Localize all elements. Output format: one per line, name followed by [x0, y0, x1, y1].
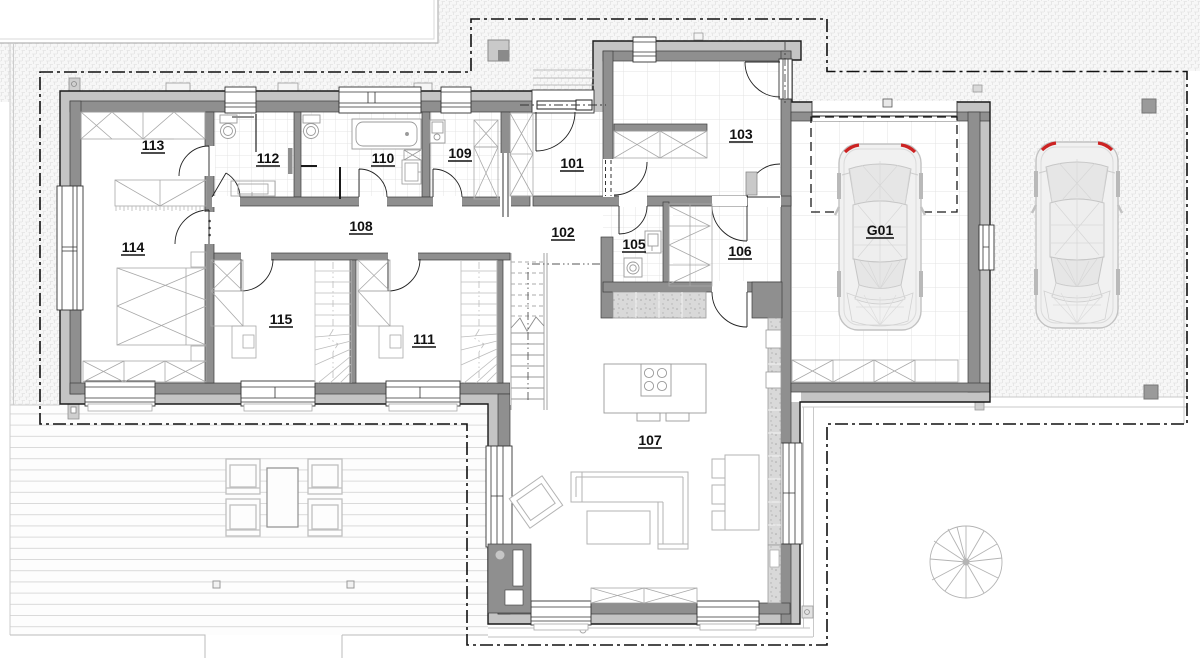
svg-text:112: 112 [257, 150, 280, 166]
svg-text:103: 103 [729, 126, 753, 142]
svg-text:108: 108 [349, 218, 373, 234]
svg-text:107: 107 [638, 432, 662, 448]
svg-text:111: 111 [413, 331, 435, 347]
svg-text:115: 115 [270, 311, 293, 327]
svg-text:110: 110 [372, 150, 395, 166]
svg-text:113: 113 [142, 137, 165, 153]
svg-text:102: 102 [551, 224, 575, 240]
svg-text:109: 109 [448, 145, 472, 161]
svg-text:105: 105 [622, 236, 646, 252]
svg-text:101: 101 [560, 155, 584, 171]
svg-text:G01: G01 [867, 222, 894, 238]
svg-text:114: 114 [122, 239, 145, 255]
svg-text:106: 106 [728, 243, 752, 259]
